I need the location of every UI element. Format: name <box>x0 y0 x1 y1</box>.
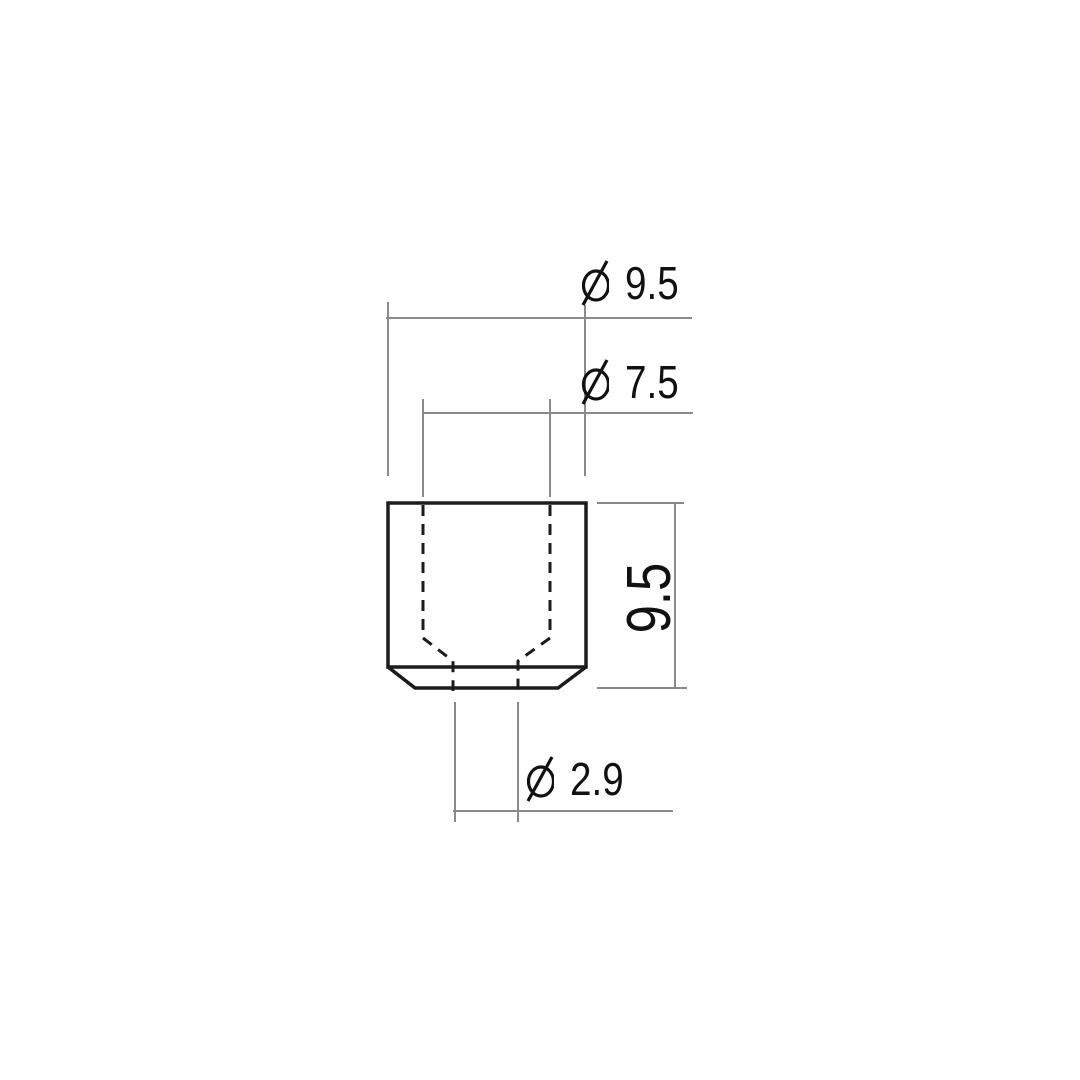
label-bore-diameter: 7.5 <box>581 357 689 407</box>
label-outer-diameter: 9.5 <box>581 258 689 308</box>
part-outline <box>388 503 586 688</box>
outer-diameter-value: 9.5 <box>625 260 679 306</box>
diameter-symbol-icon <box>581 359 609 405</box>
diameter-symbol-icon <box>581 260 609 306</box>
hidden-bore-right <box>518 505 550 691</box>
height-value: 9.5 <box>615 563 684 634</box>
part-chamfer-outline <box>388 667 586 688</box>
label-stem-diameter: 2.9 <box>526 754 634 804</box>
label-height: 9.5 <box>619 563 681 634</box>
technical-drawing <box>0 0 1080 1080</box>
part-body-outline <box>388 503 586 667</box>
diameter-symbol-icon <box>526 756 554 802</box>
drawing-canvas: 9.5 7.5 9.5 2.9 <box>0 0 1080 1080</box>
stem-diameter-value: 2.9 <box>570 756 624 802</box>
bore-diameter-value: 7.5 <box>625 359 679 405</box>
hidden-bore-left <box>423 505 453 691</box>
hidden-hole-outline <box>423 505 550 691</box>
